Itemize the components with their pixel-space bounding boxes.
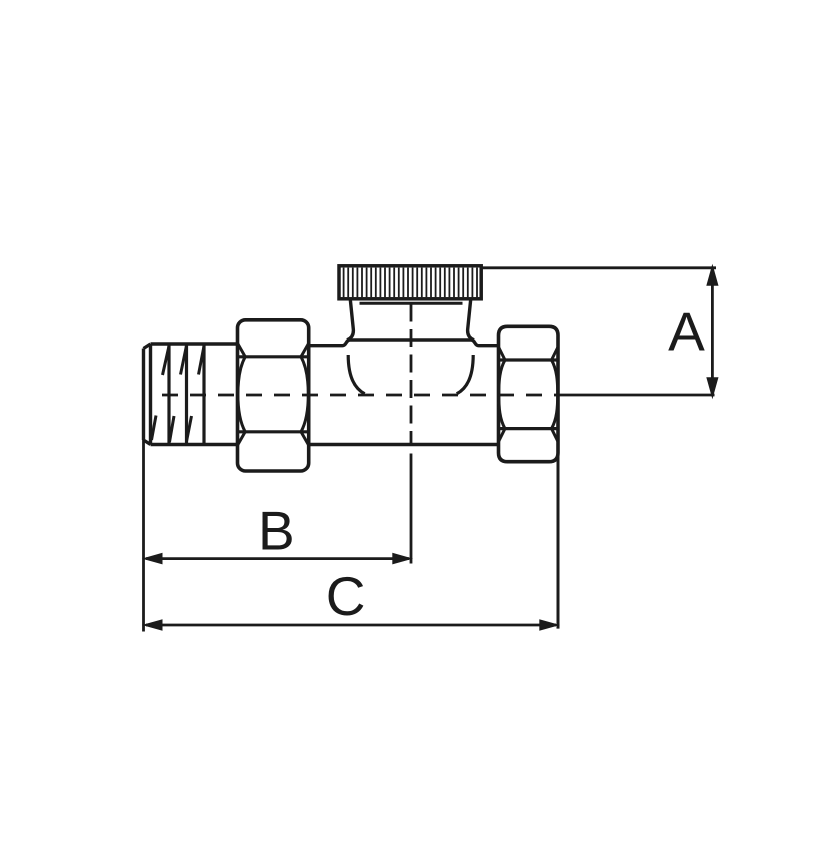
svg-text:C: C [326, 565, 366, 627]
svg-text:B: B [258, 500, 295, 562]
svg-text:A: A [668, 301, 705, 363]
